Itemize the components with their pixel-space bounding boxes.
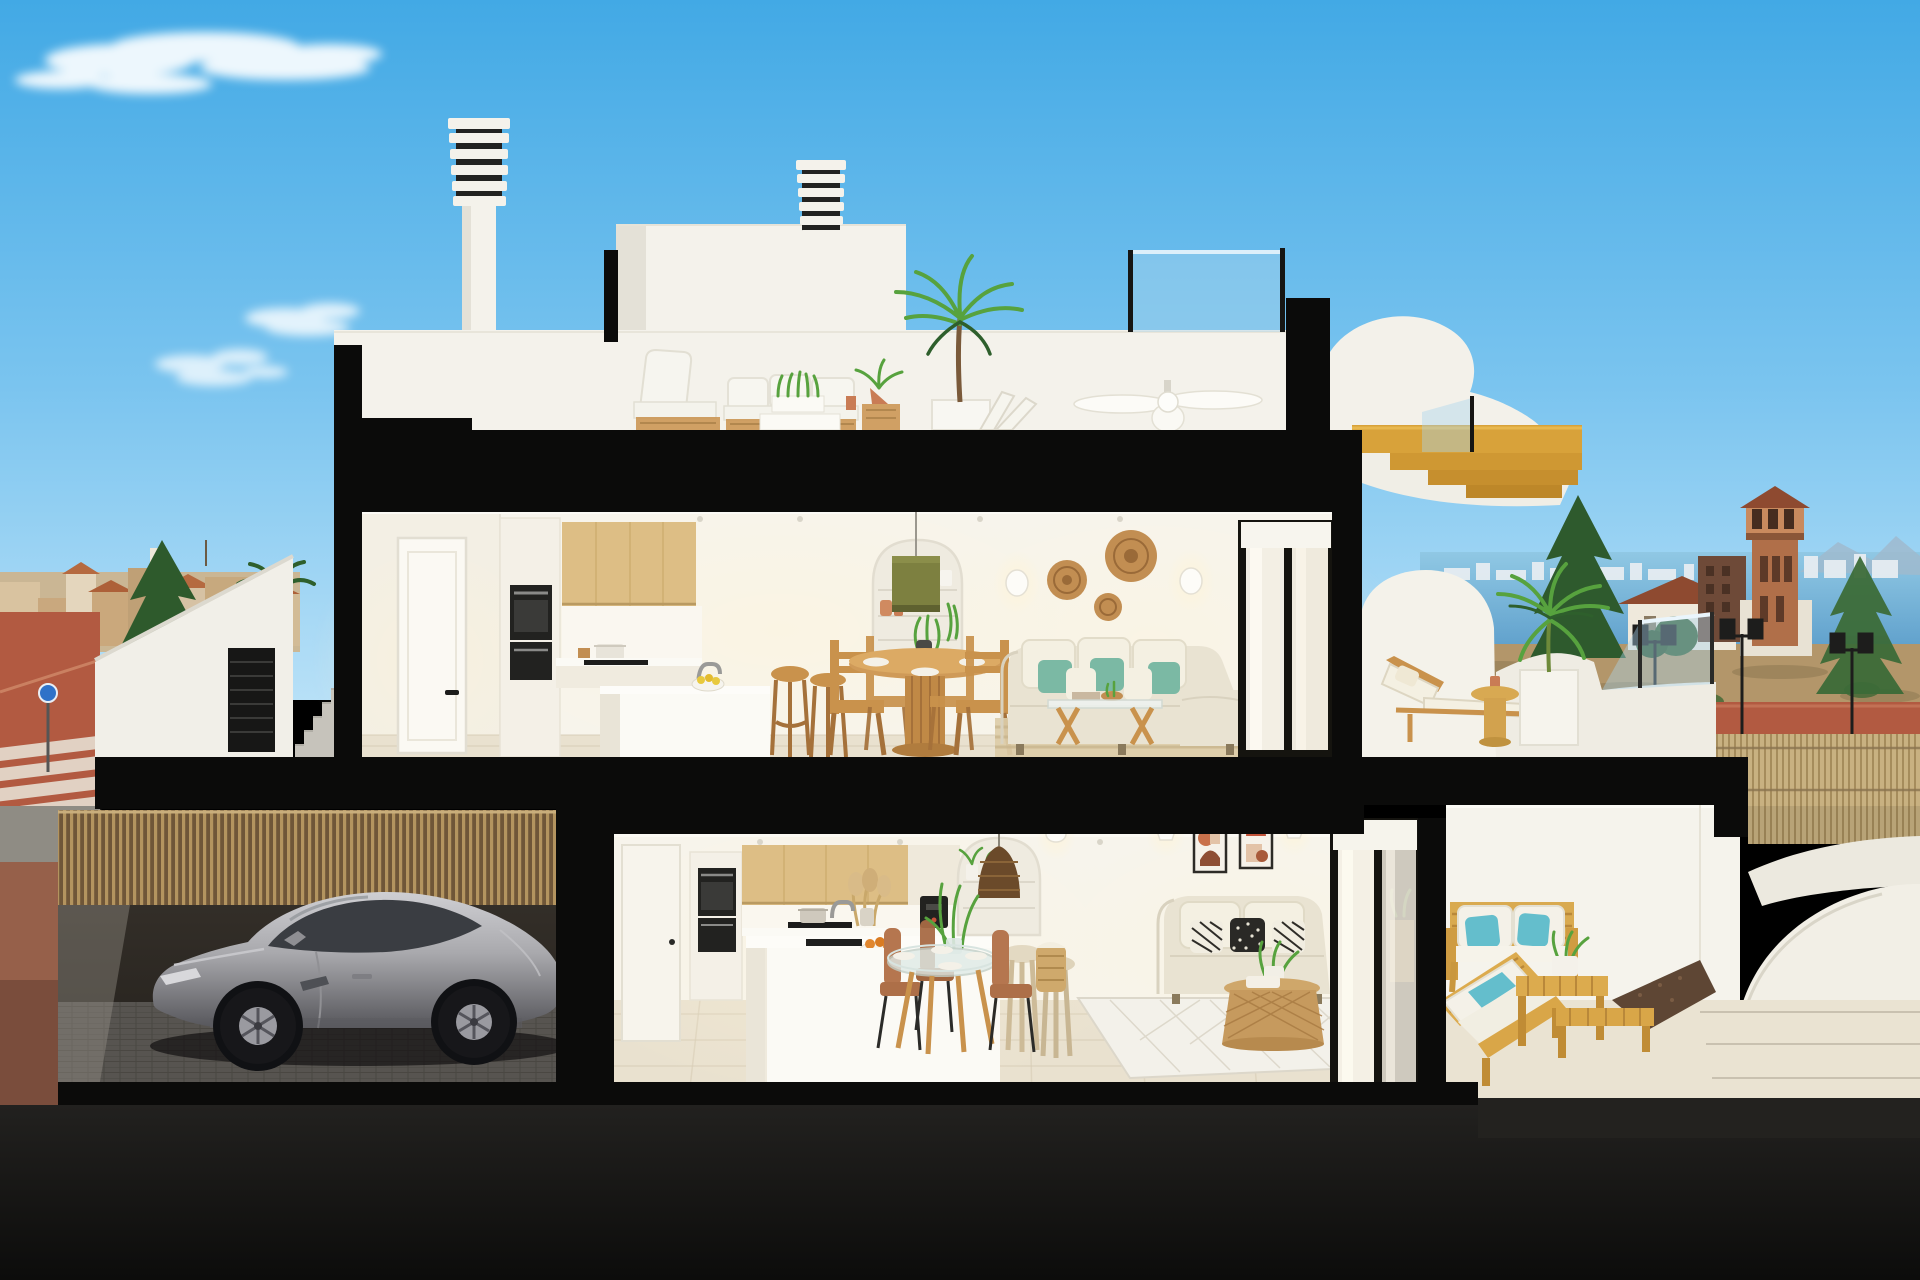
cooking-pot bbox=[798, 908, 828, 923]
timber-slat-fence bbox=[58, 810, 614, 906]
door-handle bbox=[352, 974, 372, 979]
cut-lower-right-wall bbox=[1418, 818, 1446, 1092]
wall-sconce bbox=[993, 551, 1041, 615]
oak-wall-cabinets bbox=[562, 522, 696, 606]
garage bbox=[58, 810, 614, 1105]
ground-right-shade bbox=[1478, 1098, 1920, 1138]
door-handle bbox=[445, 690, 459, 695]
cut-penthouse-edge bbox=[604, 250, 618, 342]
lower-sliding-door bbox=[1330, 818, 1420, 1088]
garage-door-interior bbox=[622, 845, 680, 1041]
arched-niche bbox=[958, 833, 1040, 935]
black-louvre-gate bbox=[228, 648, 275, 752]
upper-sliding-door bbox=[1238, 520, 1334, 757]
cut-garage-wall bbox=[556, 795, 614, 1093]
cut-slab-left bbox=[95, 757, 615, 809]
wall-sconce bbox=[1167, 549, 1215, 613]
patterned-cushions bbox=[1190, 918, 1305, 953]
oven bbox=[698, 868, 736, 952]
lower-floor bbox=[550, 800, 1920, 1105]
sink bbox=[806, 939, 862, 946]
rear-wheel bbox=[431, 979, 517, 1065]
cut-terrace-slab-step bbox=[1714, 757, 1748, 837]
curved-parapet bbox=[1360, 570, 1496, 757]
cut-floor-slab bbox=[556, 757, 1364, 834]
roof-red-mug bbox=[846, 396, 856, 410]
penthouse-volume bbox=[616, 225, 906, 340]
cut-roof-right-bar bbox=[1286, 298, 1330, 432]
roof-glass-railing bbox=[1128, 248, 1285, 332]
cut-upper-right-wall bbox=[1332, 430, 1362, 760]
render-stage bbox=[0, 0, 1920, 1280]
laundry-basket bbox=[1036, 942, 1066, 992]
cooktop bbox=[584, 660, 648, 665]
double-oven bbox=[510, 585, 552, 680]
cooking-pot bbox=[594, 644, 626, 660]
cut-roof-slab bbox=[334, 430, 1362, 512]
cut-terrace-slab bbox=[1332, 757, 1748, 805]
architectural-cutaway-render bbox=[0, 0, 1920, 1280]
cut-left-wall bbox=[334, 345, 362, 760]
white-vase bbox=[940, 570, 952, 586]
front-wheel bbox=[213, 981, 303, 1071]
interior-door bbox=[398, 538, 466, 753]
